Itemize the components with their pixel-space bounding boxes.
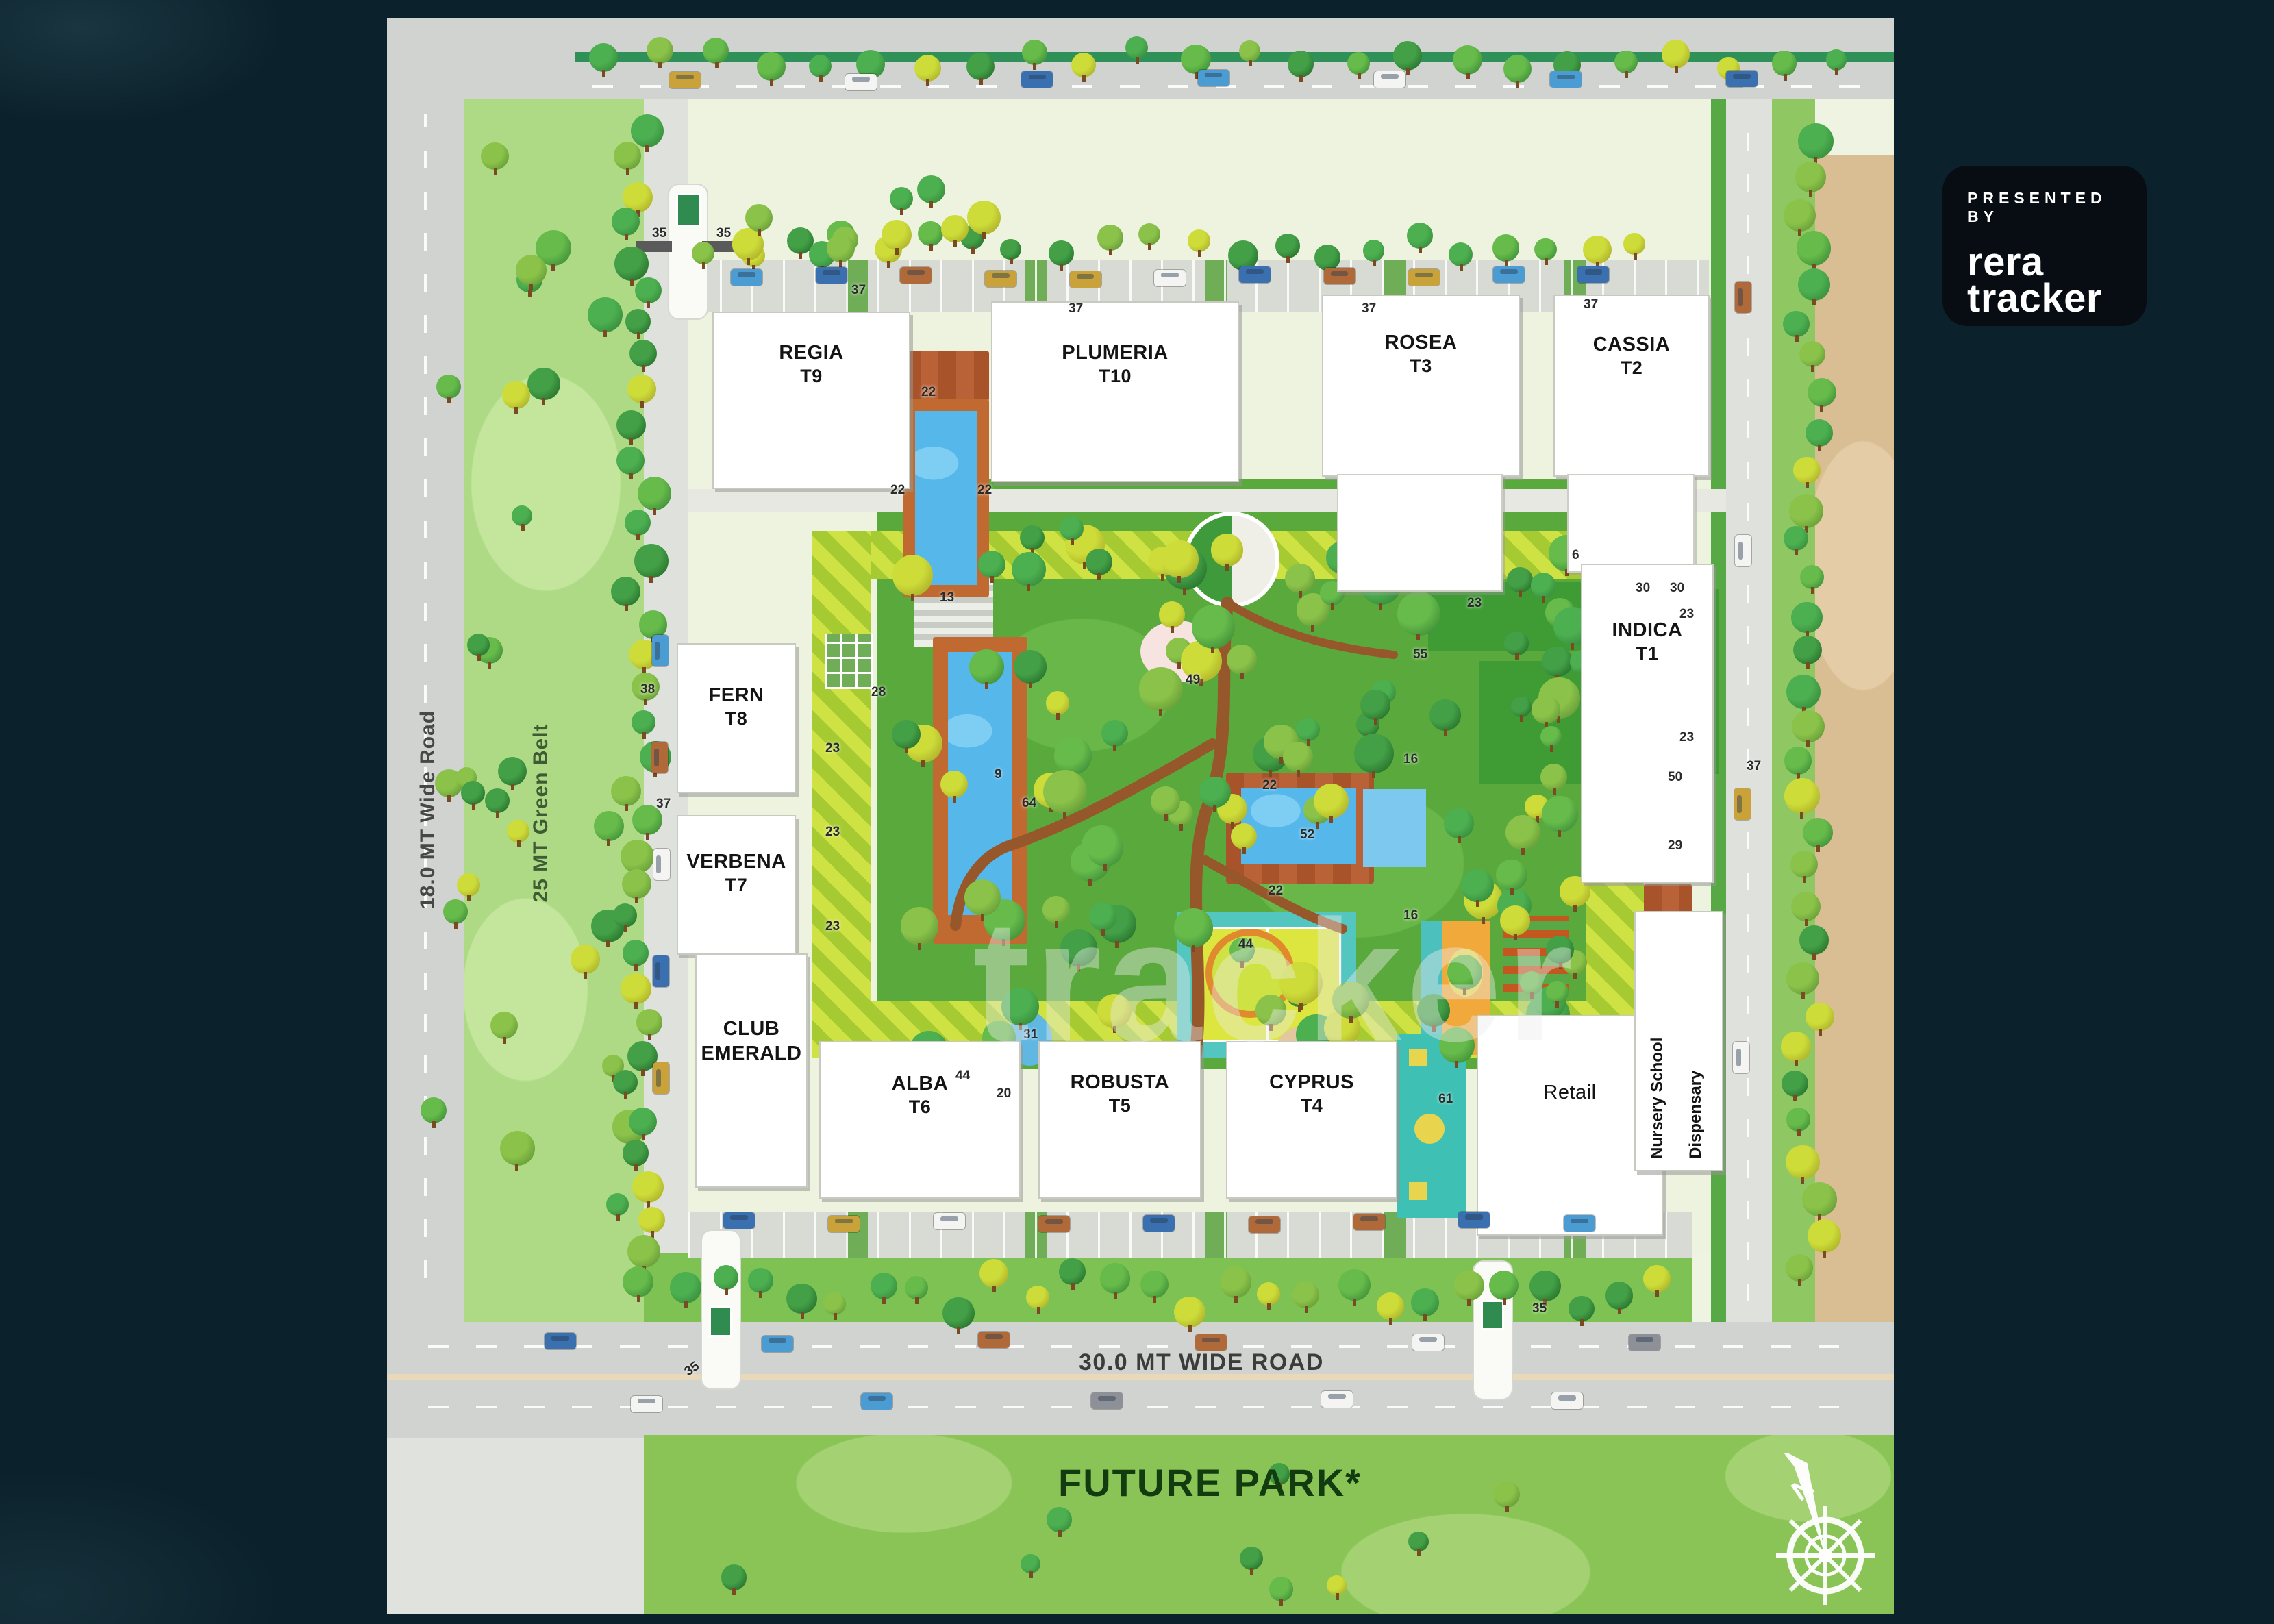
tree-icon: [1363, 240, 1385, 262]
marker-22: 22: [890, 483, 905, 498]
tree-icon: [638, 477, 671, 510]
tree-icon: [1101, 720, 1128, 747]
tree-icon: [1407, 223, 1433, 249]
tree-icon: [1802, 1182, 1837, 1217]
tree-icon: [1623, 233, 1645, 255]
tree-icon: [1505, 815, 1540, 850]
tree-icon: [1798, 123, 1834, 159]
tree-icon: [1786, 1108, 1810, 1132]
tree-icon: [1496, 860, 1527, 890]
tree-icon: [1071, 53, 1096, 77]
tree-icon: [613, 1070, 638, 1095]
marker-38: 38: [640, 682, 655, 697]
marker-35: 35: [716, 226, 731, 241]
car-icon: [653, 955, 669, 987]
label-nursery-dispensary-2: Dispensary: [1686, 995, 1705, 1159]
marker-23: 23: [1679, 607, 1694, 622]
car-icon: [669, 72, 701, 88]
marker-9: 9: [995, 767, 1002, 782]
tree-icon: [1504, 632, 1529, 656]
car-icon: [845, 74, 877, 90]
tree-icon: [613, 903, 637, 927]
tree-icon: [721, 1564, 747, 1590]
tree-icon: [1520, 971, 1543, 995]
tree-icon: [1444, 808, 1474, 838]
car-icon: [1324, 268, 1355, 284]
master-plan: REGIAT9PLUMERIAT10ROSEAT3CASSIAT2INDICAT…: [387, 18, 1894, 1614]
tree-icon: [1140, 1271, 1169, 1299]
tree-icon: [1583, 236, 1611, 264]
tree-icon: [1000, 239, 1021, 260]
tree-icon: [621, 840, 654, 873]
tree-icon: [1097, 994, 1132, 1028]
annex-cassia: [1567, 474, 1695, 573]
marker-37: 37: [1584, 297, 1598, 312]
future-park-label: FUTURE PARK*: [1058, 1460, 1362, 1505]
building-cassia: CASSIAT2: [1553, 295, 1710, 477]
tree-icon: [1614, 51, 1638, 74]
label-alba: ALBAT6: [821, 1071, 1019, 1119]
marker-37: 37: [851, 283, 866, 298]
building-cyprus: CYPRUST4: [1226, 1041, 1397, 1199]
tree-icon: [589, 43, 618, 72]
car-icon: [762, 1336, 793, 1352]
marker-44: 44: [955, 1069, 970, 1084]
car-icon: [545, 1333, 576, 1349]
tree-icon: [636, 1009, 662, 1035]
building-alba: ALBAT6: [819, 1041, 1021, 1199]
label-cyprus: CYPRUST4: [1227, 1070, 1396, 1118]
tree-icon: [629, 340, 657, 367]
car-icon: [653, 849, 670, 880]
tree-icon: [527, 368, 560, 401]
building-plumeria: PLUMERIAT10: [991, 301, 1239, 482]
tree-icon: [1799, 925, 1828, 954]
car-icon: [1195, 1334, 1227, 1351]
tree-icon: [485, 788, 510, 813]
tree-icon: [1231, 823, 1257, 849]
tree-icon: [882, 220, 912, 250]
tree-icon: [967, 201, 1001, 234]
car-icon: [828, 1216, 860, 1232]
building-robusta: ROBUSTAT5: [1038, 1041, 1201, 1199]
marker-30: 30: [1636, 581, 1650, 596]
tree-icon: [1532, 695, 1560, 724]
car-icon: [1249, 1216, 1280, 1233]
south-east-gatehouse: [1481, 1300, 1504, 1330]
tree-icon: [1542, 647, 1572, 677]
grid-garden: [825, 634, 873, 689]
car-icon: [985, 271, 1016, 287]
tree-icon: [443, 899, 468, 924]
annex-rosea: [1337, 474, 1503, 592]
presented-by-text: PRESENTED BY: [1967, 189, 2147, 226]
vacant-land: [1815, 155, 1894, 1340]
tree-icon: [1546, 981, 1569, 1003]
marker-22: 22: [1269, 884, 1283, 899]
car-icon: [900, 267, 932, 284]
car-icon: [1408, 269, 1440, 286]
marker-37: 37: [1069, 301, 1083, 316]
tree-icon: [1097, 225, 1123, 251]
tree-icon: [1786, 1145, 1820, 1179]
tree-icon: [632, 1171, 664, 1203]
car-icon: [651, 742, 668, 773]
car-icon: [1374, 71, 1405, 88]
tree-icon: [1332, 982, 1369, 1019]
tree-icon: [966, 53, 995, 81]
car-icon: [1734, 788, 1751, 820]
kids-pool: [1363, 789, 1426, 867]
road-30mt: [387, 1322, 1894, 1438]
car-icon: [861, 1393, 892, 1410]
tree-icon: [647, 37, 673, 64]
site-plan-screenshot: PRESENTED BY rera tracker: [0, 0, 2274, 1624]
tree-icon: [1393, 41, 1422, 70]
tree-icon: [1089, 903, 1117, 931]
tree-icon: [481, 142, 508, 170]
tree-icon: [461, 781, 485, 805]
marker-49: 49: [1186, 673, 1200, 688]
tree-icon: [748, 1268, 773, 1293]
tree-icon: [964, 879, 1001, 916]
tree-icon: [635, 277, 662, 304]
tree-icon: [1014, 650, 1047, 684]
presented-by-badge: PRESENTED BY rera tracker: [1942, 166, 2147, 326]
tree-icon: [1408, 1532, 1429, 1552]
tree-icon: [757, 52, 785, 80]
tree-icon: [942, 1297, 974, 1329]
marker-23: 23: [1467, 596, 1482, 611]
tree-icon: [1054, 737, 1092, 775]
tree-icon: [1240, 1547, 1263, 1570]
car-icon: [652, 635, 669, 666]
marker-22: 22: [1262, 778, 1277, 793]
tree-icon: [1454, 1271, 1484, 1301]
marker-23: 23: [825, 741, 840, 756]
building-fern: FERNT8: [677, 643, 796, 793]
tree-icon: [1086, 549, 1112, 575]
tree-icon: [1789, 494, 1823, 528]
tree-icon: [1542, 796, 1578, 832]
tree-icon: [1492, 234, 1520, 262]
tree-icon: [1211, 534, 1243, 566]
tree-icon: [1797, 231, 1831, 265]
tree-icon: [1569, 1296, 1595, 1322]
tree-icon: [1461, 869, 1494, 902]
tree-icon: [1020, 525, 1045, 550]
tree-icon: [1060, 516, 1084, 540]
tree-icon: [714, 1265, 739, 1290]
marker-6: 6: [1572, 548, 1579, 563]
building-regia: REGIAT9: [712, 312, 910, 489]
car-icon: [1577, 266, 1609, 283]
tree-icon: [1255, 995, 1286, 1025]
tree-icon: [1411, 1288, 1440, 1317]
south-west-pavement: [387, 1438, 644, 1614]
tree-icon: [457, 873, 480, 897]
tree-icon: [1808, 378, 1836, 407]
marker-22: 22: [977, 483, 992, 498]
building-rosea: ROSEAT3: [1322, 295, 1520, 477]
nw-pool-deck-top: [903, 351, 989, 401]
tree-icon: [1662, 40, 1690, 68]
marker-28: 28: [871, 685, 886, 700]
tree-icon: [1347, 52, 1370, 75]
tree-icon: [634, 544, 669, 578]
tree-icon: [670, 1272, 701, 1303]
tree-icon: [969, 649, 1004, 684]
marker-20: 20: [997, 1086, 1011, 1101]
label-nursery-dispensary-1: Nursery School: [1648, 953, 1667, 1159]
tree-icon: [914, 55, 941, 82]
car-icon: [1735, 282, 1751, 313]
car-icon: [1154, 270, 1186, 286]
tree-icon: [1139, 667, 1183, 711]
car-icon: [1321, 1391, 1353, 1408]
label-robusta: ROBUSTAT5: [1040, 1070, 1200, 1118]
car-icon: [1629, 1334, 1660, 1351]
label-verbena: VERBENAT7: [678, 849, 795, 897]
marker-16: 16: [1403, 908, 1418, 923]
tree-icon: [1429, 699, 1461, 731]
road-30mt-label: 30.0 MT WIDE ROAD: [1079, 1349, 1324, 1376]
tree-icon: [1161, 540, 1199, 578]
marker-23: 23: [825, 919, 840, 934]
tree-icon: [1043, 770, 1087, 814]
label-regia: REGIAT9: [714, 340, 909, 388]
tree-icon: [421, 1097, 447, 1123]
car-icon: [1070, 271, 1101, 288]
tree-icon: [1792, 710, 1825, 743]
marker-50: 50: [1668, 770, 1682, 785]
tree-icon: [918, 221, 942, 246]
marker-37: 37: [1362, 301, 1376, 316]
tree-icon: [940, 771, 968, 798]
tree-icon: [614, 142, 641, 169]
tree-icon: [1793, 457, 1821, 484]
car-icon: [1458, 1212, 1490, 1228]
tree-icon: [1531, 573, 1555, 597]
tree-icon: [1795, 162, 1826, 192]
tree-icon: [786, 1284, 817, 1314]
marker-13: 13: [940, 590, 954, 605]
marker-16: 16: [1403, 752, 1418, 767]
marker-64: 64: [1022, 796, 1036, 811]
promenade-west: [812, 531, 871, 1058]
tree-icon: [827, 234, 855, 263]
tree-icon: [614, 247, 649, 281]
marker-35: 35: [1532, 1301, 1547, 1316]
tree-icon: [1269, 1577, 1293, 1601]
marker-23: 23: [825, 825, 840, 840]
tree-icon: [1507, 567, 1533, 593]
tree-icon: [1605, 1282, 1633, 1309]
tree-icon: [1784, 526, 1808, 551]
tree-icon: [892, 720, 921, 749]
tree-icon: [823, 1292, 846, 1315]
tree-icon: [1279, 962, 1323, 1005]
car-icon: [653, 1062, 669, 1094]
tree-icon: [1087, 830, 1123, 866]
tree-icon: [1800, 565, 1824, 589]
tree-icon: [871, 1273, 897, 1299]
tree-icon: [625, 510, 651, 536]
car-icon: [723, 1212, 755, 1229]
tree-icon: [1397, 592, 1440, 635]
tree-icon: [1784, 199, 1816, 232]
tree-icon: [1314, 245, 1340, 271]
tree-icon: [606, 1193, 629, 1216]
tree-icon: [1772, 51, 1797, 75]
tree-icon: [1314, 784, 1349, 819]
tree-icon: [1199, 777, 1231, 808]
car-icon: [1239, 266, 1271, 283]
tree-icon: [507, 820, 529, 842]
car-icon: [1551, 1392, 1583, 1409]
tree-icon: [631, 114, 664, 147]
car-icon: [1021, 71, 1053, 88]
marker-31: 31: [1023, 1027, 1038, 1042]
tree-icon: [1790, 851, 1818, 878]
tree-icon: [1275, 234, 1299, 258]
south-west-gatehouse: [709, 1306, 732, 1337]
tree-icon: [1354, 734, 1394, 773]
label-plumeria: PLUMERIAT10: [992, 340, 1238, 388]
tree-icon: [1100, 1263, 1130, 1293]
tree-icon: [638, 1207, 664, 1233]
tree-icon: [1377, 1292, 1404, 1320]
tree-icon: [1159, 601, 1185, 627]
tree-icon: [1439, 1027, 1475, 1063]
tree-icon: [1799, 341, 1825, 367]
tree-icon: [616, 447, 645, 475]
tree-icon: [1288, 51, 1314, 77]
car-icon: [934, 1213, 965, 1229]
building-club-emerald: CLUBEMERALD: [695, 953, 808, 1188]
compass-rose: N: [1747, 1453, 1890, 1610]
tree-icon: [979, 1259, 1008, 1288]
tree-icon: [1534, 238, 1556, 260]
north-gatehouse: [676, 193, 701, 227]
tree-icon: [978, 551, 1005, 578]
tree-icon: [1059, 1258, 1086, 1285]
tree-icon: [621, 973, 651, 1004]
tree-icon: [890, 187, 913, 210]
marker-44: 44: [1238, 937, 1253, 952]
tree-icon: [1447, 955, 1482, 990]
car-icon: [1726, 71, 1758, 87]
tree-icon: [436, 375, 460, 399]
marker-23: 23: [1679, 730, 1694, 745]
tree-icon: [588, 297, 623, 332]
tree-icon: [1806, 419, 1833, 447]
label-club-emerald: CLUBEMERALD: [697, 1016, 806, 1066]
tree-icon: [1784, 778, 1820, 814]
marker-61: 61: [1438, 1092, 1453, 1107]
tree-icon: [941, 215, 969, 242]
marker-37: 37: [656, 797, 671, 812]
car-icon: [816, 267, 847, 284]
car-icon: [1143, 1215, 1175, 1232]
tree-icon: [1500, 905, 1530, 936]
tree-icon: [1338, 1269, 1370, 1301]
tree-icon: [1360, 690, 1390, 720]
tree-icon: [1047, 1507, 1071, 1532]
tree-icon: [1782, 1071, 1808, 1097]
tree-icon: [1227, 645, 1257, 675]
brand-line-rera: rera: [1967, 244, 2147, 280]
tree-icon: [594, 811, 624, 841]
car-icon: [978, 1332, 1010, 1348]
marker-52: 52: [1300, 827, 1314, 842]
tree-icon: [1001, 988, 1039, 1025]
tree-icon: [1417, 994, 1450, 1027]
tree-icon: [1791, 602, 1823, 634]
brand-line-tracker: tracker: [1967, 280, 2147, 316]
tree-icon: [901, 907, 939, 945]
tree-icon: [809, 55, 832, 77]
tree-icon: [1453, 45, 1482, 75]
tree-icon: [629, 1108, 657, 1136]
rera-tracker-logo: rera tracker: [1967, 244, 2147, 317]
car-icon: [1353, 1214, 1385, 1230]
car-icon: [731, 269, 762, 286]
car-icon: [1733, 1042, 1749, 1073]
tree-icon: [1784, 747, 1812, 775]
tree-icon: [500, 1131, 535, 1166]
tree-icon: [1012, 552, 1046, 586]
car-icon: [1038, 1216, 1070, 1232]
car-icon: [1735, 535, 1751, 566]
tree-icon: [1783, 311, 1809, 337]
car-icon: [1564, 1215, 1595, 1232]
marker-29: 29: [1668, 838, 1682, 853]
tree-icon: [1643, 1265, 1671, 1292]
tree-icon: [627, 1235, 660, 1268]
marker-22: 22: [921, 385, 936, 400]
car-icon: [1493, 266, 1525, 283]
car-icon: [1198, 70, 1229, 86]
tree-icon: [1808, 1219, 1841, 1253]
tree-icon: [612, 208, 640, 236]
tree-icon: [1021, 1554, 1040, 1573]
tree-icon: [1285, 564, 1315, 594]
road-18mt-label: 18.0 MT Wide Road: [416, 717, 440, 909]
tree-icon: [745, 204, 773, 232]
marker-30: 30: [1670, 581, 1684, 596]
marker-37: 37: [1747, 759, 1761, 774]
tree-icon: [892, 555, 933, 595]
tree-icon: [1046, 691, 1069, 714]
marker-55: 55: [1413, 647, 1427, 662]
tree-icon: [571, 945, 600, 974]
tree-icon: [627, 375, 656, 403]
tree-icon: [502, 381, 530, 409]
tree-icon: [623, 1140, 649, 1166]
car-icon: [631, 1396, 662, 1412]
label-cassia: CASSIAT2: [1555, 332, 1708, 380]
green-belt-label: 25 MT Green Belt: [529, 717, 553, 909]
tree-icon: [1806, 1003, 1834, 1032]
car-icon: [1412, 1334, 1444, 1351]
tree-icon: [1781, 1032, 1811, 1062]
tree-icon: [490, 1012, 518, 1039]
tree-icon: [1049, 240, 1074, 266]
tree-icon: [1239, 40, 1260, 62]
tree-icon: [1060, 929, 1097, 966]
tree-icon: [1192, 605, 1235, 648]
